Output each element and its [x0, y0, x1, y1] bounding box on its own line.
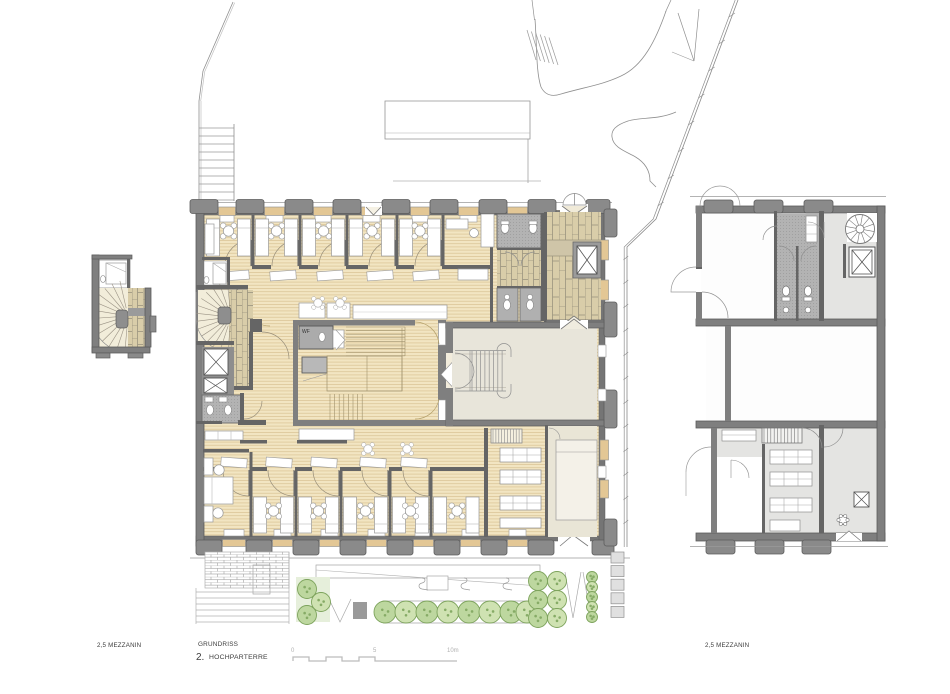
svg-text:WF: WF [302, 329, 310, 335]
svg-text:2,5 MEZZANIN: 2,5 MEZZANIN [705, 642, 749, 649]
svg-text:10m: 10m [447, 648, 459, 654]
svg-text:2,5 MEZZANIN: 2,5 MEZZANIN [97, 642, 141, 649]
svg-text:GRUNDRISS: GRUNDRISS [198, 641, 238, 648]
svg-text:HOCHPARTERRE: HOCHPARTERRE [209, 654, 268, 661]
svg-text:2.: 2. [196, 652, 204, 663]
